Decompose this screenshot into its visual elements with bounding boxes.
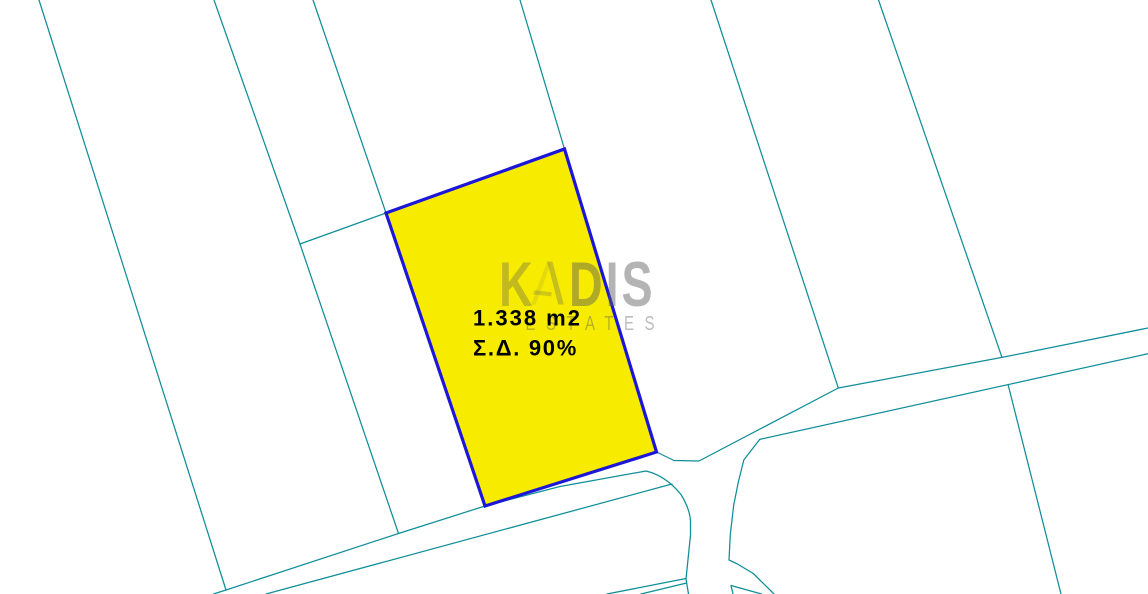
svg-text:DIS: DIS: [569, 249, 656, 319]
svg-text:1.338 m2: 1.338 m2: [473, 306, 582, 331]
svg-text:Σ.Δ. 90%: Σ.Δ. 90%: [473, 336, 578, 361]
